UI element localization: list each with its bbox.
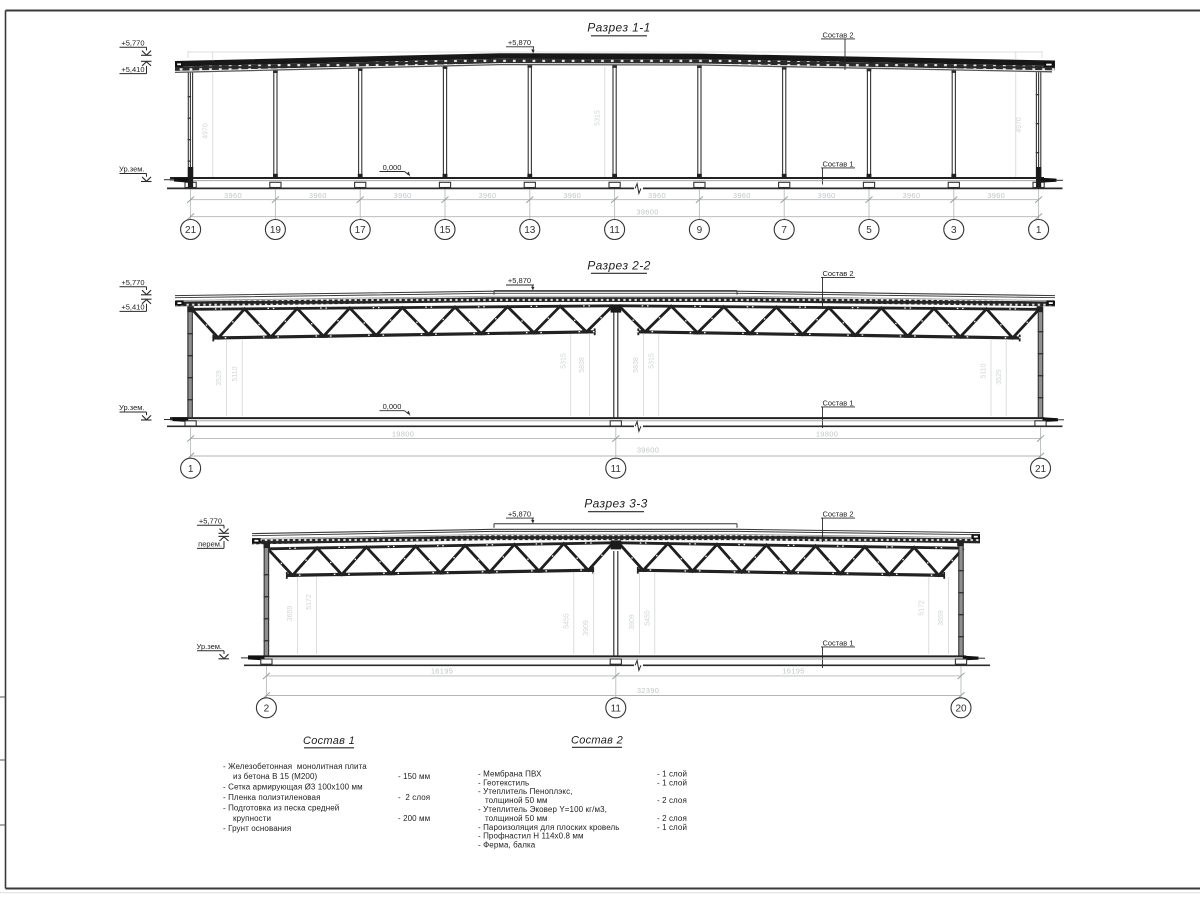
svg-text:0,000: 0,000 xyxy=(383,402,402,411)
svg-text:+5,770: +5,770 xyxy=(121,278,144,287)
svg-text:3659: 3659 xyxy=(287,606,294,622)
svg-text:Состав 1: Состав 1 xyxy=(822,638,853,647)
svg-text:+5,770: +5,770 xyxy=(199,517,222,526)
svg-text:толщиной 50 мм: толщиной 50 мм xyxy=(485,814,548,823)
svg-text:5838: 5838 xyxy=(633,357,640,373)
svg-text:- Геотекстиль: - Геотекстиль xyxy=(478,778,529,787)
svg-text:9: 9 xyxy=(697,225,703,236)
svg-text:3529: 3529 xyxy=(216,370,223,386)
svg-text:Состав 2: Состав 2 xyxy=(571,735,623,747)
svg-text:3960: 3960 xyxy=(563,191,581,200)
svg-text:- Грунт основания: - Грунт основания xyxy=(223,824,291,833)
svg-text:4970: 4970 xyxy=(203,123,210,139)
svg-text:+5,870: +5,870 xyxy=(508,38,531,47)
svg-text:- 1 слой: - 1 слой xyxy=(657,778,687,787)
svg-text:5110: 5110 xyxy=(981,363,988,378)
svg-text:Ур.зем.: Ур.зем. xyxy=(119,403,144,412)
svg-text:5838: 5838 xyxy=(579,357,586,373)
svg-text:Состав 1: Состав 1 xyxy=(303,735,355,747)
svg-text:21: 21 xyxy=(1035,464,1047,475)
svg-text:11: 11 xyxy=(609,225,620,236)
svg-text:4970: 4970 xyxy=(1016,117,1023,133)
svg-text:2: 2 xyxy=(264,703,270,714)
svg-text:- Ферма, балка: - Ферма, балка xyxy=(478,841,536,850)
svg-text:Состав 2: Состав 2 xyxy=(822,510,853,519)
svg-text:3960: 3960 xyxy=(394,191,412,200)
svg-text:- Утеплитель Эковер Y=100 кг/м: - Утеплитель Эковер Y=100 кг/м3, xyxy=(478,805,607,814)
svg-text:- Профнастил Н 114x0.8 мм: - Профнастил Н 114x0.8 мм xyxy=(478,832,584,841)
svg-text:- Пароизоляция для плоских кро: - Пароизоляция для плоских кровель xyxy=(478,823,620,832)
svg-text:- Сетка армирующая Ø3 100x100: - Сетка армирующая Ø3 100x100 мм xyxy=(223,783,363,792)
svg-text:- 2 слоя: - 2 слоя xyxy=(657,796,687,805)
svg-text:19: 19 xyxy=(270,225,282,236)
svg-text:1: 1 xyxy=(1036,225,1042,236)
svg-text:- 200 мм: - 200 мм xyxy=(398,814,430,823)
svg-text:5172: 5172 xyxy=(918,600,925,616)
svg-text:3960: 3960 xyxy=(818,191,836,200)
svg-text:Ур.зем.: Ур.зем. xyxy=(197,642,222,651)
svg-text:3659: 3659 xyxy=(938,610,945,626)
svg-text:19800: 19800 xyxy=(392,429,414,438)
svg-text:5315: 5315 xyxy=(648,353,655,369)
svg-text:Состав 2: Состав 2 xyxy=(822,30,853,39)
svg-text:- Мембрана ПВХ: - Мембрана ПВХ xyxy=(478,769,542,778)
svg-text:16195: 16195 xyxy=(782,667,804,676)
svg-text:- Железобетонная монолитная п: - Железобетонная монолитная плита xyxy=(223,762,367,771)
svg-text:5455: 5455 xyxy=(563,613,570,629)
svg-text:3960: 3960 xyxy=(478,191,496,200)
svg-text:5315: 5315 xyxy=(595,110,602,126)
svg-text:+5,410: +5,410 xyxy=(121,65,144,74)
svg-text:- Пленка полиэтиленовая: - Пленка полиэтиленовая xyxy=(223,793,321,802)
svg-text:11: 11 xyxy=(611,464,622,475)
svg-text:Разрез 3-3: Разрез 3-3 xyxy=(584,497,647,511)
svg-text:3529: 3529 xyxy=(996,369,1003,385)
svg-text:+5,770: +5,770 xyxy=(121,39,144,48)
svg-text:39600: 39600 xyxy=(636,207,658,216)
svg-text:- 150 мм: - 150 мм xyxy=(398,772,430,781)
svg-text:3960: 3960 xyxy=(902,191,920,200)
svg-text:Ур.зем.: Ур.зем. xyxy=(119,165,144,174)
svg-text:3909: 3909 xyxy=(629,614,636,630)
svg-text:7: 7 xyxy=(781,225,787,236)
svg-text:+5,870: +5,870 xyxy=(508,509,531,518)
svg-text:толщиной 50 мм: толщиной 50 мм xyxy=(485,796,548,805)
svg-text:16195: 16195 xyxy=(431,667,453,676)
svg-text:5: 5 xyxy=(866,225,872,236)
svg-text:из бетона В 15 (М200): из бетона В 15 (М200) xyxy=(233,772,318,781)
svg-text:15: 15 xyxy=(439,225,451,236)
svg-text:3960: 3960 xyxy=(733,191,751,200)
svg-text:- 1 слой: - 1 слой xyxy=(657,823,687,832)
svg-text:- 2 слоя: - 2 слоя xyxy=(657,814,687,823)
svg-text:5455: 5455 xyxy=(644,610,651,626)
svg-text:1: 1 xyxy=(188,464,194,475)
svg-text:21: 21 xyxy=(185,225,197,236)
svg-text:Состав 1: Состав 1 xyxy=(822,159,853,168)
svg-text:перем.: перем. xyxy=(198,540,222,549)
svg-text:32390: 32390 xyxy=(637,686,659,695)
svg-text:13: 13 xyxy=(524,225,536,236)
svg-text:5315: 5315 xyxy=(560,353,567,369)
svg-text:- Подготовка из песка средней: - Подготовка из песка средней xyxy=(223,803,339,812)
svg-text:17: 17 xyxy=(355,225,367,236)
svg-text:5110: 5110 xyxy=(232,366,239,381)
svg-text:3909: 3909 xyxy=(583,620,590,636)
svg-text:39600: 39600 xyxy=(637,446,659,455)
svg-text:- 1 слой: - 1 слой xyxy=(657,769,687,778)
svg-text:19800: 19800 xyxy=(816,429,838,438)
svg-text:- Утеплитель Пеноплэкс,: - Утеплитель Пеноплэкс, xyxy=(478,787,573,796)
svg-text:Состав 2: Состав 2 xyxy=(822,269,853,278)
svg-text:Разрез 2-2: Разрез 2-2 xyxy=(587,259,650,273)
svg-text:3960: 3960 xyxy=(987,191,1005,200)
svg-text:Разрез 1-1: Разрез 1-1 xyxy=(587,21,650,35)
svg-text:Состав 1: Состав 1 xyxy=(822,398,853,407)
svg-text:5172: 5172 xyxy=(306,594,313,610)
svg-text:0,000: 0,000 xyxy=(383,163,402,172)
svg-text:3960: 3960 xyxy=(309,191,327,200)
svg-text:3: 3 xyxy=(951,225,957,236)
svg-text:крупности: крупности xyxy=(233,814,271,823)
svg-text:20: 20 xyxy=(955,703,967,714)
svg-text:+5,410: +5,410 xyxy=(121,303,144,312)
svg-text:3960: 3960 xyxy=(648,191,666,200)
svg-text:+5,870: +5,870 xyxy=(508,276,531,285)
svg-text:- 2 слоя: - 2 слоя xyxy=(398,793,430,802)
svg-text:3960: 3960 xyxy=(224,191,242,200)
svg-text:11: 11 xyxy=(611,703,622,714)
